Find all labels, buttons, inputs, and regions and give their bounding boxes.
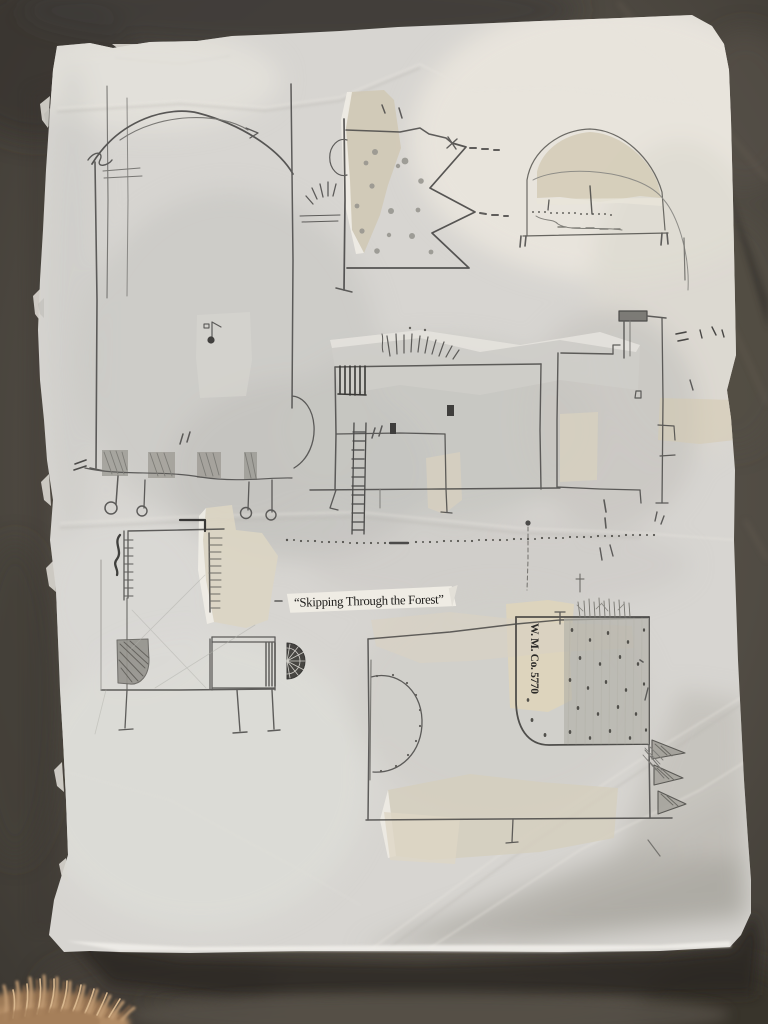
- svg-text:W. M. Co. 5770: W. M. Co. 5770: [528, 623, 540, 694]
